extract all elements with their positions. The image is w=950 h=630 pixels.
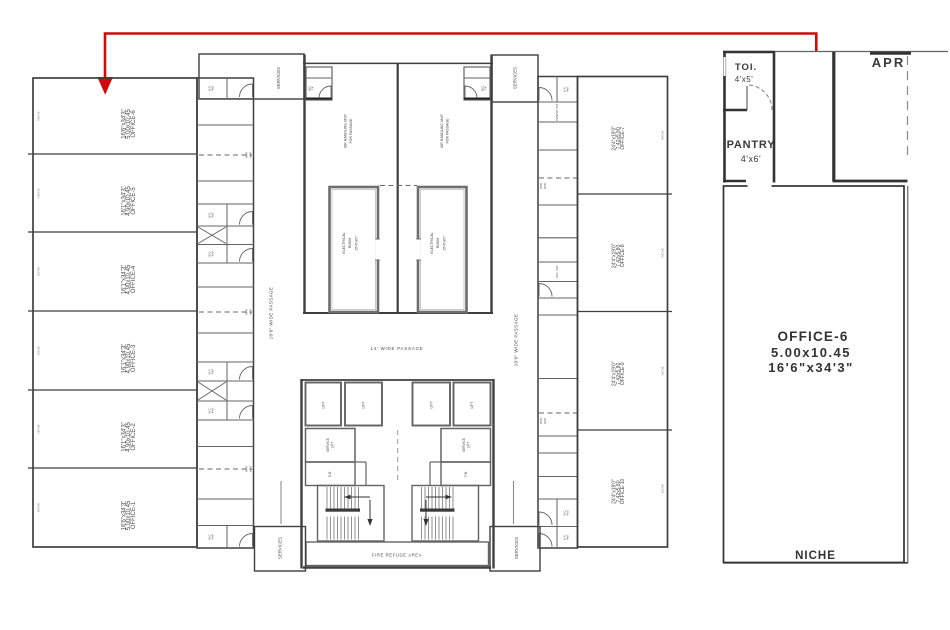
svg-text:16'6"x34'3": 16'6"x34'3" [768,360,854,375]
svg-text:25'4"x8'0": 25'4"x8'0" [354,235,358,251]
svg-text:APR: APR [543,183,547,189]
svg-text:25'4"x8'0": 25'4"x8'0" [442,235,446,251]
svg-text:APR: APR [248,466,252,472]
svg-text:NICHE: NICHE [37,424,41,433]
svg-text:4'x6': 4'x6' [211,212,215,218]
svg-text:4'x6': 4'x6' [741,154,761,164]
svg-text:APR: APR [543,418,547,424]
svg-text:OFFICE-2: OFFICE-2 [131,423,137,451]
svg-text:E.B.: E.B. [328,471,332,477]
svg-text:NICHE: NICHE [661,131,665,140]
svg-text:OFFICE-6: OFFICE-6 [777,329,848,344]
svg-text:AIR HANDLING UNIT: AIR HANDLING UNIT [440,113,444,148]
svg-text:APR: APR [248,309,252,315]
svg-text:4'x6': 4'x6' [211,368,215,374]
svg-text:14' WIDE PASSAGE: 14' WIDE PASSAGE [370,346,423,351]
svg-text:NICHE: NICHE [37,188,41,197]
svg-text:SERVICE: SERVICE [326,438,330,452]
svg-text:LIFT: LIFT [321,402,325,409]
svg-text:SERVICES: SERVICES [513,67,518,89]
svg-text:LIFT: LIFT [362,402,366,409]
svg-text:FIRE REFUGE AREA: FIRE REFUGE AREA [372,553,422,558]
svg-text:ELECTRICAL: ELECTRICAL [430,232,434,253]
svg-text:PANTRY 4'x7': PANTRY 4'x7' [555,103,559,121]
svg-text:NICHE: NICHE [661,366,665,375]
svg-text:7'4": 7'4" [484,86,488,91]
svg-text:4'x6': 4'x6' [566,509,570,515]
svg-text:4'x6': 4'x6' [566,86,570,92]
svg-text:TOI.: TOI. [735,62,757,73]
svg-text:NICHE: NICHE [37,346,41,355]
svg-text:NICHE: NICHE [661,484,665,493]
svg-text:4'x6': 4'x6' [211,85,215,91]
svg-text:NICHE: NICHE [37,267,41,276]
svg-text:SERVICES: SERVICES [514,537,519,559]
svg-text:LIFT: LIFT [470,402,474,409]
svg-text:10'0" WIDE PASSAGE: 10'0" WIDE PASSAGE [514,314,519,367]
svg-text:ROOM: ROOM [436,238,440,249]
svg-text:ROOM: ROOM [348,238,352,249]
svg-text:4'x6': 4'x6' [211,533,215,539]
svg-text:AIR HANDLING UNIT: AIR HANDLING UNIT [343,113,347,148]
svg-text:NICHE: NICHE [661,248,665,257]
svg-text:OFFICE-3: OFFICE-3 [131,344,137,372]
svg-text:4'x6': 4'x6' [566,534,570,540]
svg-text:4'x6': 4'x6' [211,250,215,256]
svg-text:OFFICE-6: OFFICE-6 [131,110,137,138]
svg-text:PANTRY: PANTRY [727,139,776,151]
svg-text:OFFICE-7: OFFICE-7 [620,127,626,150]
svg-text:OFFICE-10: OFFICE-10 [620,479,626,505]
svg-text:7'4": 7'4" [311,86,315,91]
svg-text:NICHE: NICHE [795,550,836,562]
svg-text:APR: APR [248,152,252,158]
svg-text:APR: APR [872,55,905,70]
svg-text:FOR PASSAGE: FOR PASSAGE [445,118,449,143]
svg-text:FOR PASSAGE: FOR PASSAGE [349,118,353,143]
svg-text:F.B.: F.B. [464,471,468,477]
svg-text:OFFICE-1: OFFICE-1 [131,501,137,529]
svg-text:SERVICES: SERVICES [276,67,281,89]
svg-text:OFFICE-9: OFFICE-9 [620,362,626,385]
svg-text:10'0" WIDE PASSAGE: 10'0" WIDE PASSAGE [269,287,274,340]
svg-text:OFFICE-5: OFFICE-5 [131,187,137,215]
svg-text:NICHE: NICHE [37,111,41,120]
svg-text:SERVICE: SERVICE [462,438,466,452]
svg-text:LIFT: LIFT [429,402,433,409]
svg-text:W.C.: W.C. [480,85,484,91]
svg-text:W.C.: W.C. [307,85,311,91]
svg-text:LIFT: LIFT [330,442,334,449]
svg-text:OFFICE-8: OFFICE-8 [620,244,626,267]
svg-text:SERVICES: SERVICES [278,537,283,559]
svg-text:5.00x10.45: 5.00x10.45 [771,345,851,360]
svg-text:ELECTRICAL: ELECTRICAL [342,232,346,253]
svg-text:LIFT: LIFT [466,442,470,449]
svg-text:NICHE: NICHE [37,503,41,512]
svg-text:W.C. 4'x6': W.C. 4'x6' [555,265,559,278]
svg-text:4'x5': 4'x5' [735,75,753,84]
svg-text:OFFICE-4: OFFICE-4 [131,265,137,293]
svg-text:4'x6': 4'x6' [211,407,215,413]
